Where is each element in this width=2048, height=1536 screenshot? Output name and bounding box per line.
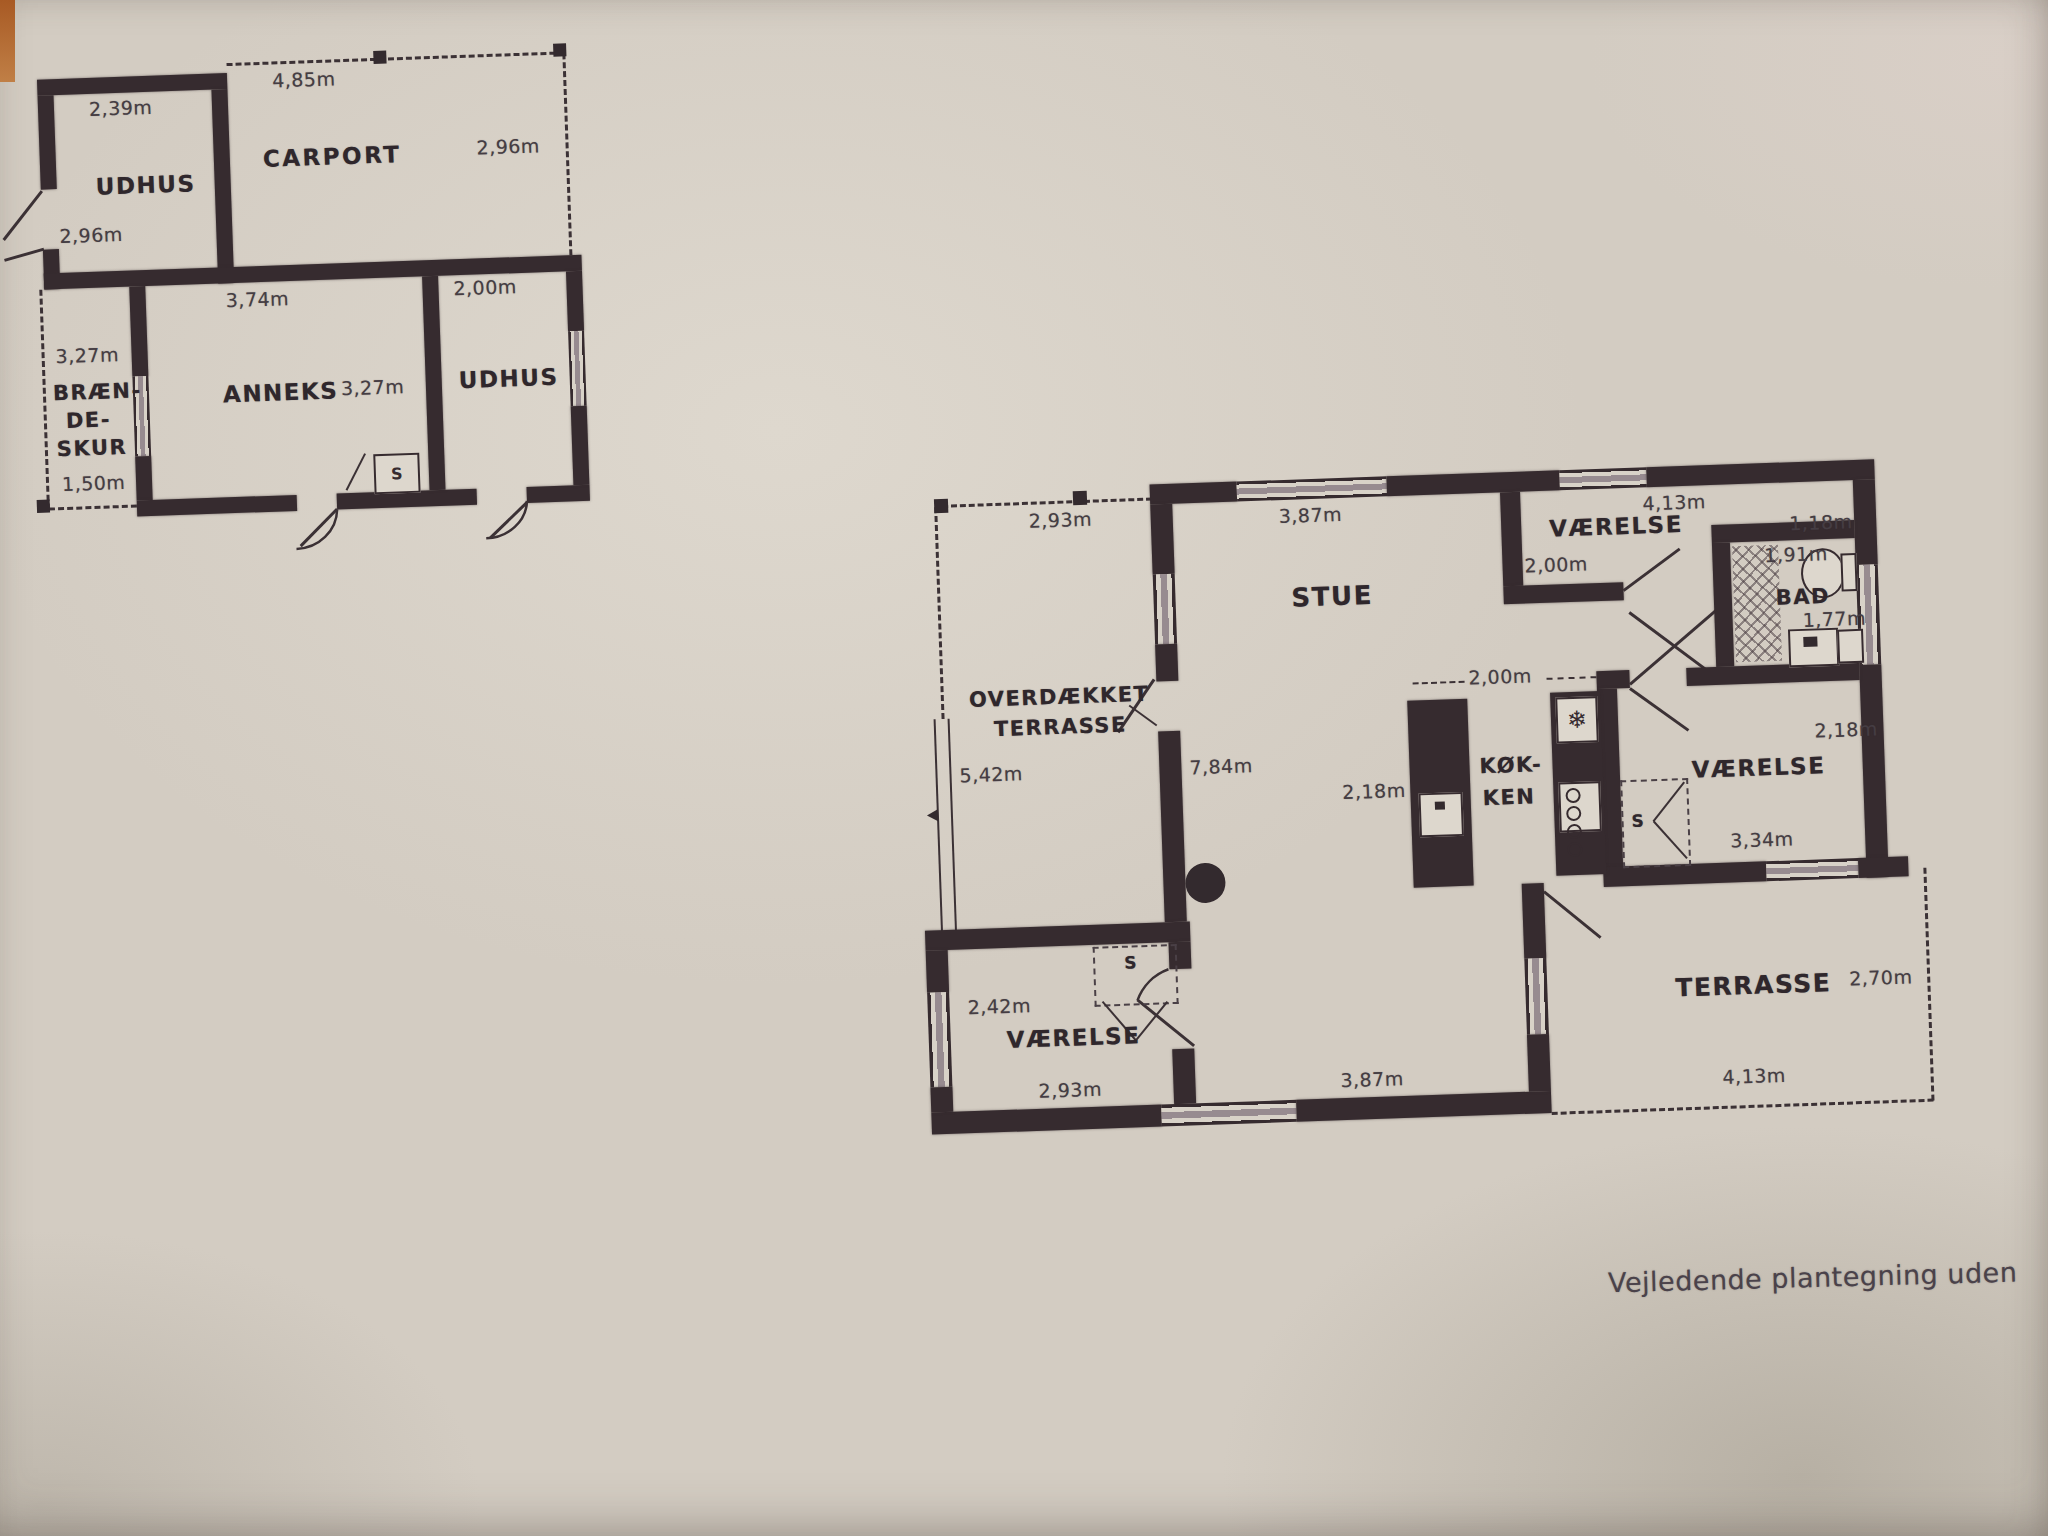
terrace-dashed-top (942, 498, 1152, 508)
wall (566, 271, 584, 332)
wall (931, 1105, 1162, 1135)
door-swing (1629, 687, 1689, 731)
dimension-label: 2,96m (59, 223, 123, 247)
closet-door-line (346, 453, 366, 490)
dimension-label: 2,00m (453, 275, 517, 299)
wood-stove (1185, 862, 1226, 903)
window (1766, 858, 1859, 881)
room-label-udhus-e: UDHUS (458, 364, 559, 393)
faucet (1435, 801, 1445, 809)
wall (1296, 1091, 1552, 1122)
burner-icon (1565, 788, 1581, 804)
wall (1858, 856, 1909, 878)
closet-label: S (1124, 952, 1138, 972)
room-label-carport: CARPORT (262, 141, 401, 172)
wall (1712, 542, 1734, 667)
wall (422, 276, 445, 490)
room-label-bad: BAD (1775, 584, 1830, 610)
dimension-label: 1,18m (1789, 510, 1853, 534)
photo-edge-accent (0, 0, 15, 82)
braendeskur-dashed-left (39, 290, 50, 510)
kitchen-sink (1418, 792, 1464, 838)
fridge: ❄ (1555, 696, 1599, 743)
room-label-braendeskur-1: BRÆN- (53, 378, 143, 405)
dimension-label: 2,96m (476, 134, 540, 158)
wall (1646, 459, 1875, 487)
dimension-label: 4,13m (1642, 490, 1706, 514)
snowflake-icon: ❄ (1566, 705, 1587, 734)
burner-icon (1566, 806, 1582, 822)
dimension-line (1547, 676, 1597, 680)
room-label-overdaekket-1: OVERDÆKKET (969, 682, 1150, 712)
wall (1150, 504, 1174, 575)
dimension-label: 4,13m (1722, 1064, 1786, 1088)
wall (37, 73, 227, 96)
dimension-label: 3,27m (55, 343, 119, 367)
door-swing (3, 190, 44, 241)
door-arc (293, 507, 340, 551)
wall (135, 456, 153, 501)
room-label-koekken-1: KØK- (1479, 752, 1543, 778)
wall (1503, 582, 1624, 604)
dimension-label: 1,91m (1764, 542, 1828, 566)
dimension-label: 3,27m (341, 375, 405, 399)
dimension-label: 5,42m (959, 762, 1023, 786)
outbuilding-plan: S 2,39m UDHUS 2,96m 4,85m CARPORT 2,96m … (21, 30, 619, 580)
corner-marker (1073, 491, 1087, 505)
door-swing (4, 248, 44, 262)
wall (1527, 1034, 1551, 1092)
room-label-terrasse: TERRASSE (1675, 968, 1832, 1002)
plan-caption: Vejledende plantegning uden (1608, 1257, 2018, 1299)
room-label-koekken-2: KEN (1482, 784, 1536, 810)
bath-sink (1788, 628, 1839, 668)
scanned-floorplan-photo: S 2,39m UDHUS 2,96m 4,85m CARPORT 2,96m … (0, 0, 2048, 1536)
corner-marker (553, 43, 566, 56)
corner-marker (373, 51, 386, 64)
dimension-label: 3,87m (1340, 1067, 1404, 1091)
door-swing (1623, 548, 1681, 592)
room-label-overdaekket-2: TERRASSE (994, 713, 1128, 742)
wall (1596, 670, 1630, 689)
stove-burners (1558, 781, 1602, 832)
dimension-label: 2,70m (1849, 965, 1913, 989)
room-label-braendeskur-2: DE- (65, 407, 111, 433)
terrace-dashed-left (934, 507, 944, 719)
wall (1522, 883, 1547, 959)
wall (930, 1087, 953, 1113)
wall (1500, 492, 1523, 587)
window (568, 331, 587, 407)
wall (38, 95, 57, 190)
wall (926, 950, 949, 993)
faucet (1803, 636, 1817, 646)
dimension-label: 2,93m (1038, 1078, 1102, 1102)
dimension-label: 2,39m (89, 96, 153, 120)
window (1236, 476, 1387, 501)
terrasse-dashed-bottom (1552, 1099, 1934, 1115)
wall (1158, 731, 1187, 923)
dimension-label: 2,18m (1342, 779, 1406, 803)
dimension-label: 2,18m (1814, 717, 1878, 741)
window (1559, 467, 1647, 490)
room-label-vaerelse-ne: VÆRELSE (1549, 511, 1683, 542)
window (1153, 574, 1177, 645)
window (927, 992, 952, 1088)
closet-label: S (391, 464, 403, 483)
dimension-label: 1,77m (1802, 607, 1866, 631)
wall (211, 89, 234, 283)
wall (129, 286, 148, 377)
closet-box: S (373, 453, 420, 495)
wall (1150, 482, 1238, 505)
toilet-tank (1840, 553, 1857, 592)
wall (137, 495, 297, 517)
wall (1386, 470, 1560, 496)
corner-marker (934, 499, 948, 513)
carport-dashed-top (227, 51, 565, 66)
room-label-vaerelse-e: VÆRELSE (1691, 752, 1825, 783)
braendeskur-dashed-bottom (49, 505, 137, 511)
closet-label: S (1631, 811, 1645, 831)
dimension-label: 3,34m (1730, 827, 1794, 851)
dimension-label: 7,84m (1189, 754, 1253, 778)
dimension-label: 2,93m (1028, 508, 1092, 532)
wall (1172, 1048, 1196, 1104)
wall (1859, 664, 1888, 878)
label-pointer (1129, 705, 1158, 727)
dimension-label: 1,50m (62, 471, 126, 495)
corner-marker (37, 500, 50, 513)
door-swing (1136, 999, 1195, 1047)
dimension-label: 3,87m (1278, 503, 1342, 527)
wall (571, 406, 590, 486)
terrasse-dashed-right (1923, 868, 1934, 1101)
carport-dashed-right (562, 53, 572, 255)
door-arc (483, 499, 530, 541)
dimension-label: 2,00m (1468, 664, 1532, 688)
house-plan: S ❄ S 2,93m OVERDÆKKET TERRASSE 5,42m 7,… (888, 412, 1972, 1149)
wall (1853, 479, 1878, 565)
railing-arrow (927, 809, 938, 821)
room-label-udhus-nw: UDHUS (95, 170, 196, 199)
room-label-anneks: ANNEKS (223, 377, 339, 407)
dimension-label: 2,00m (1524, 552, 1588, 576)
room-label-braendeskur-3: SKUR (56, 435, 127, 461)
bath-cabinet (1837, 629, 1864, 664)
dimension-label: 3,74m (225, 287, 289, 311)
dimension-label: 4,85m (272, 67, 336, 91)
dimension-label: 2,42m (967, 994, 1031, 1018)
door-swing (1543, 890, 1602, 938)
room-label-stue: STUE (1291, 580, 1373, 613)
terrace-railing (934, 719, 957, 931)
wall (1155, 644, 1178, 682)
wall (526, 485, 590, 503)
room-label-vaerelse-sw: VÆRELSE (1006, 1022, 1140, 1053)
dimension-line (1413, 681, 1465, 685)
window (1524, 958, 1549, 1035)
